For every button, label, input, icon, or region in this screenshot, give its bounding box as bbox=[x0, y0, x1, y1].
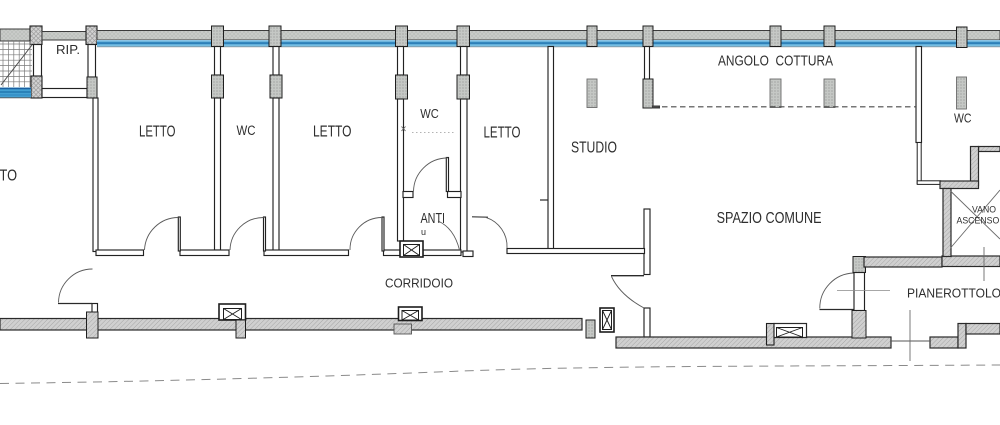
svg-text:u: u bbox=[421, 227, 426, 237]
svg-text:ANGOLO COTTURA: ANGOLO COTTURA bbox=[718, 53, 833, 70]
svg-text:VANO: VANO bbox=[972, 204, 996, 214]
svg-text:LETTO: LETTO bbox=[484, 125, 521, 142]
svg-text:SPAZIO COMUNE: SPAZIO COMUNE bbox=[717, 210, 822, 227]
svg-text:ASCENSORE: ASCENSORE bbox=[957, 215, 1000, 226]
svg-text:WC: WC bbox=[237, 123, 256, 138]
svg-text:LETTO: LETTO bbox=[313, 123, 352, 140]
svg-text:STUDIO: STUDIO bbox=[571, 139, 617, 156]
svg-text:LETTO: LETTO bbox=[139, 123, 176, 140]
svg-text:PIANEROTTOLO: PIANEROTTOLO bbox=[907, 287, 1000, 301]
svg-text:RIP.: RIP. bbox=[56, 43, 80, 57]
svg-text:WC: WC bbox=[420, 106, 439, 121]
svg-text:WC: WC bbox=[954, 112, 972, 126]
svg-text:CORRIDOIO: CORRIDOIO bbox=[385, 277, 453, 291]
svg-text:TO: TO bbox=[0, 168, 17, 185]
svg-text:ANTI: ANTI bbox=[421, 211, 446, 227]
